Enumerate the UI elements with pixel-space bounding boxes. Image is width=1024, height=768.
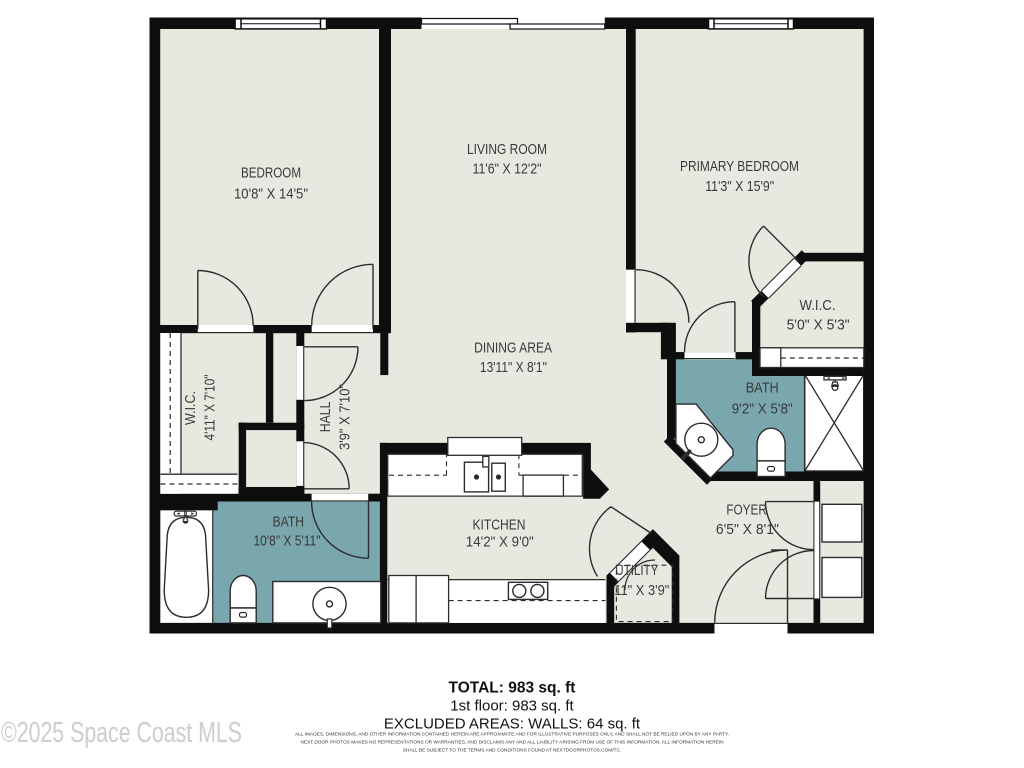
- svg-text:13'11" X 8'1": 13'11" X 8'1": [480, 360, 547, 376]
- svg-text:BATH: BATH: [746, 381, 779, 397]
- svg-text:UTILITY: UTILITY: [615, 563, 658, 579]
- svg-text:4'11" X 7'10": 4'11" X 7'10": [203, 375, 219, 441]
- svg-text:6'5" X 8'1": 6'5" X 8'1": [716, 522, 779, 538]
- svg-text:EXCLUDED AREAS: WALLS: 64 sq.: EXCLUDED AREAS: WALLS: 64 sq. ft: [384, 716, 641, 733]
- svg-text:©2025 Space Coast MLS: ©2025 Space Coast MLS: [1, 717, 242, 749]
- svg-text:NEXT DOOR PHOTOS MAKES NO REPR: NEXT DOOR PHOTOS MAKES NO REPRESENTATION…: [300, 740, 724, 746]
- svg-text:PRIMARY BEDROOM: PRIMARY BEDROOM: [680, 159, 799, 175]
- svg-text:KITCHEN: KITCHEN: [473, 517, 526, 533]
- svg-text:W.I.C.: W.I.C.: [183, 391, 199, 425]
- svg-text:LIVING ROOM: LIVING ROOM: [467, 142, 547, 158]
- svg-text:1st floor: 983 sq. ft: 1st floor: 983 sq. ft: [450, 698, 574, 715]
- svg-text:3'9" X 7'10": 3'9" X 7'10": [338, 384, 354, 450]
- svg-text:DINING AREA: DINING AREA: [474, 341, 552, 357]
- svg-text:FOYER: FOYER: [726, 502, 766, 518]
- svg-text:10'8" X 14'5": 10'8" X 14'5": [234, 187, 308, 203]
- svg-text:14'2" X 9'0": 14'2" X 9'0": [466, 535, 534, 551]
- svg-text:TOTAL: 983 sq. ft: TOTAL: 983 sq. ft: [449, 680, 576, 697]
- svg-text:9'2" X 5'8": 9'2" X 5'8": [732, 402, 793, 418]
- svg-text:SHALL BE SUBJECT TO THE TERMS: SHALL BE SUBJECT TO THE TERMS AND CONDIT…: [403, 748, 621, 754]
- svg-text:BEDROOM: BEDROOM: [241, 166, 301, 182]
- svg-text:BATH: BATH: [273, 515, 305, 531]
- svg-text:5'0" X 5'3": 5'0" X 5'3": [787, 318, 850, 334]
- svg-text:W.I.C.: W.I.C.: [800, 298, 836, 314]
- svg-text:HALL: HALL: [318, 402, 334, 433]
- svg-text:11'3" X 15'9": 11'3" X 15'9": [705, 179, 774, 195]
- svg-text:ALL IMAGES, DIMENSIONS, AND OT: ALL IMAGES, DIMENSIONS, AND OTHER INFORM…: [295, 732, 729, 738]
- svg-text:11" X 3'9": 11" X 3'9": [614, 583, 669, 599]
- svg-text:10'8" X 5'11": 10'8" X 5'11": [254, 534, 321, 550]
- svg-text:11'6" X 12'2": 11'6" X 12'2": [473, 161, 542, 177]
